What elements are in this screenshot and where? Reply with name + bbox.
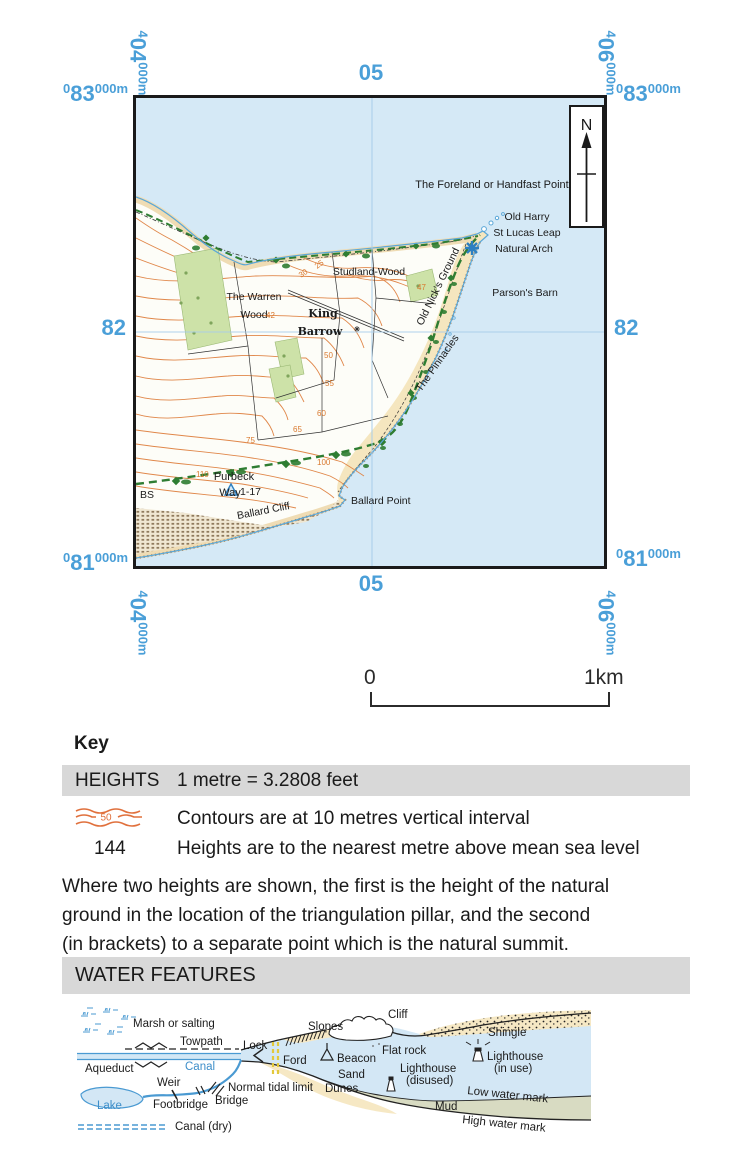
contour-symbol-value: 50 [100,813,112,824]
label-beacon: Beacon [337,1053,376,1065]
label-lock: Lock [243,1040,268,1052]
map-canvas: N The Foreland or Handfast Point Old Har… [136,98,604,566]
map-label-ballard-point: Ballard Point [351,495,411,507]
label-lake: Lake [97,1100,122,1112]
contour-label-100: 100 [317,458,331,467]
label-bridge: Bridge [215,1095,248,1107]
label-dunes: Dunes [325,1083,358,1095]
label-cliff: Cliff [388,1009,408,1021]
heights-header: HEIGHTS [75,765,159,796]
label-ford: Ford [283,1055,307,1067]
north-arrow: N [570,106,603,227]
grid-suffix: 000m [648,546,681,561]
page: 404000m 406000m 404000m 406000m 05 05 08… [0,0,748,1168]
label-normal-tidal-limit: Normal tidal limit [228,1082,314,1094]
grid-northing-82-left: 82 [88,317,126,339]
key-title: Key [74,733,109,755]
grid-northing-82-right: 82 [614,317,638,339]
scalebar-1km: 1km [584,666,624,690]
label-weir: Weir [157,1077,181,1089]
note-line-1: Where two heights are shown, the first i… [62,872,609,901]
grid-suffix: 000m [136,62,151,95]
grid-main: 81 [70,550,94,575]
contour-symbol: 50 [74,806,144,830]
note-line-2: ground in the location of the triangulat… [62,901,609,930]
map-frame: N The Foreland or Handfast Point Old Har… [133,95,607,569]
contour-label-60: 60 [317,409,326,418]
grid-suffix: 000m [95,550,128,565]
label-disused: (disused) [406,1075,453,1087]
contour-label-55: 55 [325,379,334,388]
grid-main: 06 [594,598,619,622]
label-sand: Sand [338,1069,365,1081]
contour-description: Contours are at 10 metres vertical inter… [177,808,530,830]
map-label-old-harry: Old Harry [505,211,551,223]
contour-label-75: 75 [246,436,255,445]
heights-header-bar: HEIGHTS 1 metre = 3.2808 feet [62,765,690,796]
canal-water [77,1054,241,1060]
scalebar [370,692,610,707]
scalebar-zero: 0 [364,666,376,690]
label-footbridge: Footbridge [153,1099,208,1111]
grid-easting-05-bottom: 05 [354,573,388,595]
marsh-icons [81,1008,136,1034]
map-label-parsons-barn: Parson's Barn [492,287,558,299]
grid-easting-05-top: 05 [354,62,388,84]
contour-label-110: 110 [196,470,209,479]
contour-label-65: 65 [293,425,302,434]
map-label-st-lucas-leap: St Lucas Leap [493,227,560,239]
grid-suffix: 000m [95,81,128,96]
map-label-natural-arch: Natural Arch [495,243,553,255]
label-lighthouse-disused: Lighthouse [400,1063,456,1075]
label-flat-rock: Flat rock [382,1045,426,1057]
label-aqueduct: Aqueduct [85,1063,134,1075]
map-label-purbeck-1: Purbeck [214,471,255,483]
label-canal-dry: Canal (dry) [175,1121,232,1133]
map-label-warren-wood-2: Wood [240,309,267,321]
map-label-warren-wood-1: The Warren [226,291,281,303]
water-features-header: WATER FEATURES [75,957,256,994]
water-features-header-bar: WATER FEATURES [62,957,690,994]
map-label-purbeck-2: Way [219,487,241,499]
label-in-use: (in use) [494,1063,533,1075]
water-features-diagram: Marsh or salting Towpath Lock Canal Aque… [73,1002,593,1142]
height-sample: 144 [94,838,126,860]
contour-label-50: 50 [324,351,333,360]
grid-main: 04 [126,598,151,622]
note-line-3: (in brackets) to a separate point which … [62,930,609,959]
label-towpath: Towpath [180,1036,223,1048]
map-label-king-barrow-2: Barrow [298,325,343,338]
grid-main: 83 [70,81,94,106]
grid-suffix: 000m [604,622,619,655]
heights-note: Where two heights are shown, the first i… [62,872,609,959]
map-label-foreland: The Foreland or Handfast Point [415,179,568,191]
canal-dry-icon [78,1125,165,1129]
grid-suffix: 000m [136,622,151,655]
grid-main: 81 [623,546,647,571]
label-shingle: Shingle [488,1027,526,1039]
label-canal: Canal [185,1061,215,1073]
grid-northing-081-right: 081000m [616,547,681,570]
contour-label-42: 42 [266,311,275,320]
grid-main: 06 [594,38,619,62]
height-description: Heights are to the nearest metre above m… [177,838,640,860]
north-letter: N [581,117,593,134]
label-mud: Mud [435,1101,457,1113]
grid-northing-083-left: 083000m [52,82,128,105]
map-label-studland-wood: Studland-Wood [333,266,405,278]
viewpoint-star-icon [465,241,479,255]
contour-label-47: 47 [417,283,426,292]
grid-main: 83 [623,81,647,106]
grid-main: 04 [126,38,151,62]
label-lighthouse-in-use: Lighthouse [487,1051,543,1063]
map-label-trig-height: 1-17 [240,486,261,498]
label-slopes: Slopes [308,1021,343,1033]
grid-suffix: 000m [648,81,681,96]
grid-northing-081-left: 081000m [52,551,128,574]
grid-northing-083-right: 083000m [616,82,681,105]
label-marsh: Marsh or salting [133,1018,215,1030]
map-label-king-barrow-1: King [308,307,338,320]
metre-conversion: 1 metre = 3.2808 feet [177,765,358,796]
map-label-bs: BS [140,489,154,501]
